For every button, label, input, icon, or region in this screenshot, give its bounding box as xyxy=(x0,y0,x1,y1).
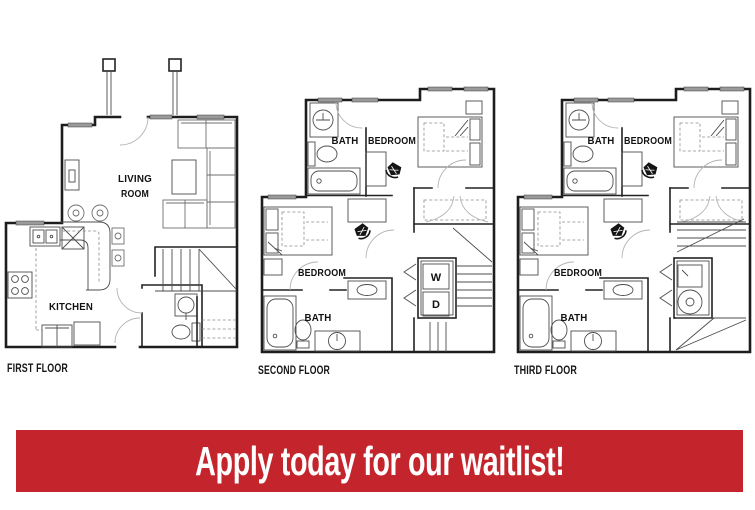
bath-upper-label: BATH xyxy=(588,136,615,147)
first-floor-plan: LIVING ROOM KITCHEN FIRST FLOOR xyxy=(6,59,237,375)
kitchen-label: KITCHEN xyxy=(49,302,93,313)
bedroom-lower-label: BEDROOM xyxy=(554,268,602,279)
balcony-posts xyxy=(103,59,181,115)
bath-lower-label: BATH xyxy=(561,313,588,324)
second-floor-title: SECOND FLOOR xyxy=(258,365,330,377)
bath-lower-label: BATH xyxy=(305,313,332,324)
bedroom-upper-label: BEDROOM xyxy=(368,136,416,147)
living-room-label-line2: ROOM xyxy=(121,189,149,200)
floor-plans-drawing: LIVING ROOM KITCHEN FIRST FLOOR BATH BED… xyxy=(0,0,755,425)
stairs-first-floor xyxy=(155,247,237,347)
second-floor-plan: BATH BEDROOM BEDROOM BATH W D SECOND FLO… xyxy=(258,87,494,377)
waitlist-banner[interactable]: Apply today for our waitlist! xyxy=(16,430,743,492)
banner-text: Apply today for our waitlist! xyxy=(195,438,564,485)
bath-upper-label: BATH xyxy=(332,136,359,147)
bedroom-lower-label: BEDROOM xyxy=(298,268,346,279)
third-floor-plan: BATH BEDROOM BEDROOM BATH THIRD FLOOR xyxy=(514,87,750,377)
third-floor-title: THIRD FLOOR xyxy=(514,365,577,377)
stairs-third-floor xyxy=(676,219,746,350)
bedroom-upper-label: BEDROOM xyxy=(624,136,672,147)
first-floor-title: FIRST FLOOR xyxy=(7,363,68,375)
living-room-label-line1: LIVING xyxy=(118,174,152,185)
washer-label: W xyxy=(431,272,442,284)
stairs-second-floor xyxy=(430,228,492,352)
kitchen-fixtures xyxy=(8,205,124,347)
powder-room xyxy=(117,285,202,347)
floor-plan-flyer: LIVING ROOM KITCHEN FIRST FLOOR BATH BED… xyxy=(0,0,755,510)
water-heater-closet xyxy=(678,265,702,314)
dryer-label: D xyxy=(432,299,440,311)
